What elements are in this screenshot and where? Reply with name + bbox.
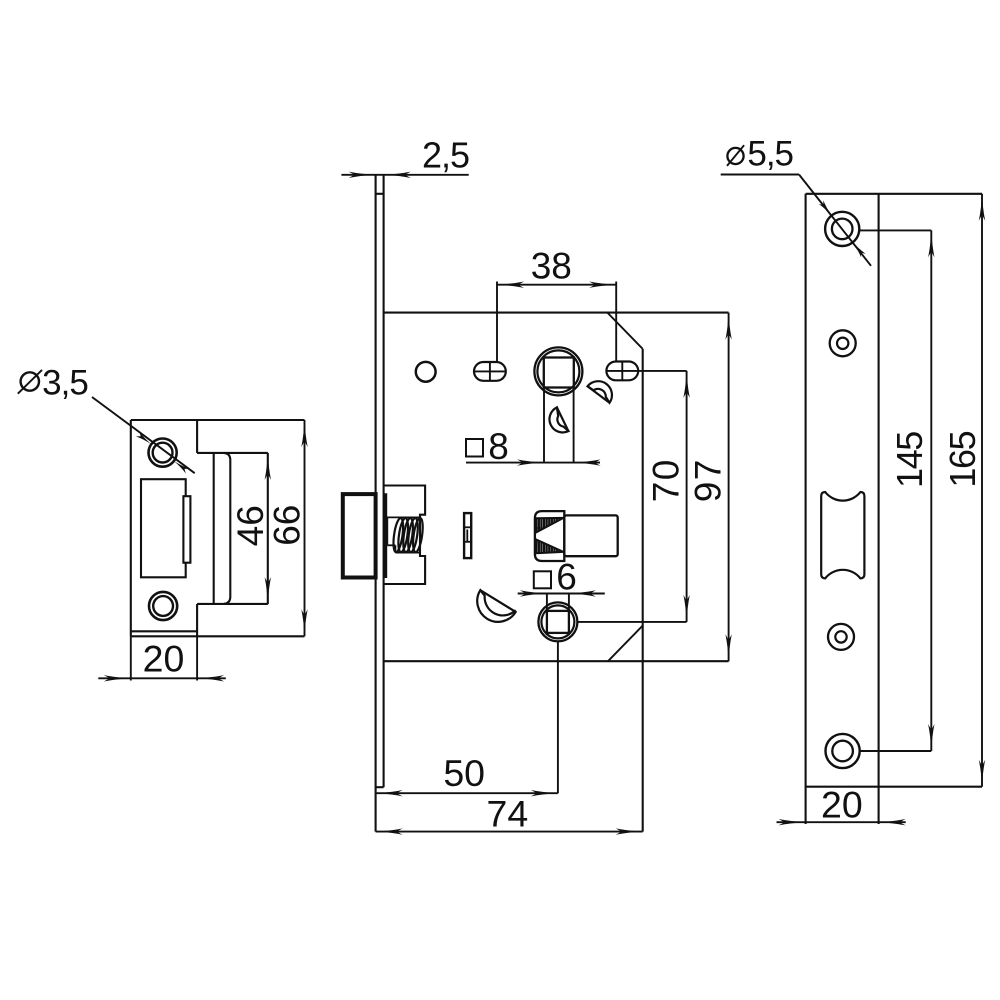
svg-text:165: 165 xyxy=(942,431,983,487)
svg-text:66: 66 xyxy=(267,505,308,546)
svg-text:5,5: 5,5 xyxy=(747,135,793,174)
svg-text:70: 70 xyxy=(646,458,687,502)
svg-text:8: 8 xyxy=(488,426,509,467)
svg-text:97: 97 xyxy=(688,458,729,502)
svg-text:20: 20 xyxy=(821,784,863,826)
svg-text:2,5: 2,5 xyxy=(422,135,469,176)
svg-text:38: 38 xyxy=(531,246,572,287)
svg-text:145: 145 xyxy=(889,432,930,488)
svg-text:74: 74 xyxy=(487,793,529,835)
svg-text:46: 46 xyxy=(230,505,271,546)
svg-text:3,5: 3,5 xyxy=(42,363,88,402)
svg-text:6: 6 xyxy=(556,557,577,598)
svg-text:20: 20 xyxy=(143,637,185,679)
svg-text:50: 50 xyxy=(443,752,485,794)
